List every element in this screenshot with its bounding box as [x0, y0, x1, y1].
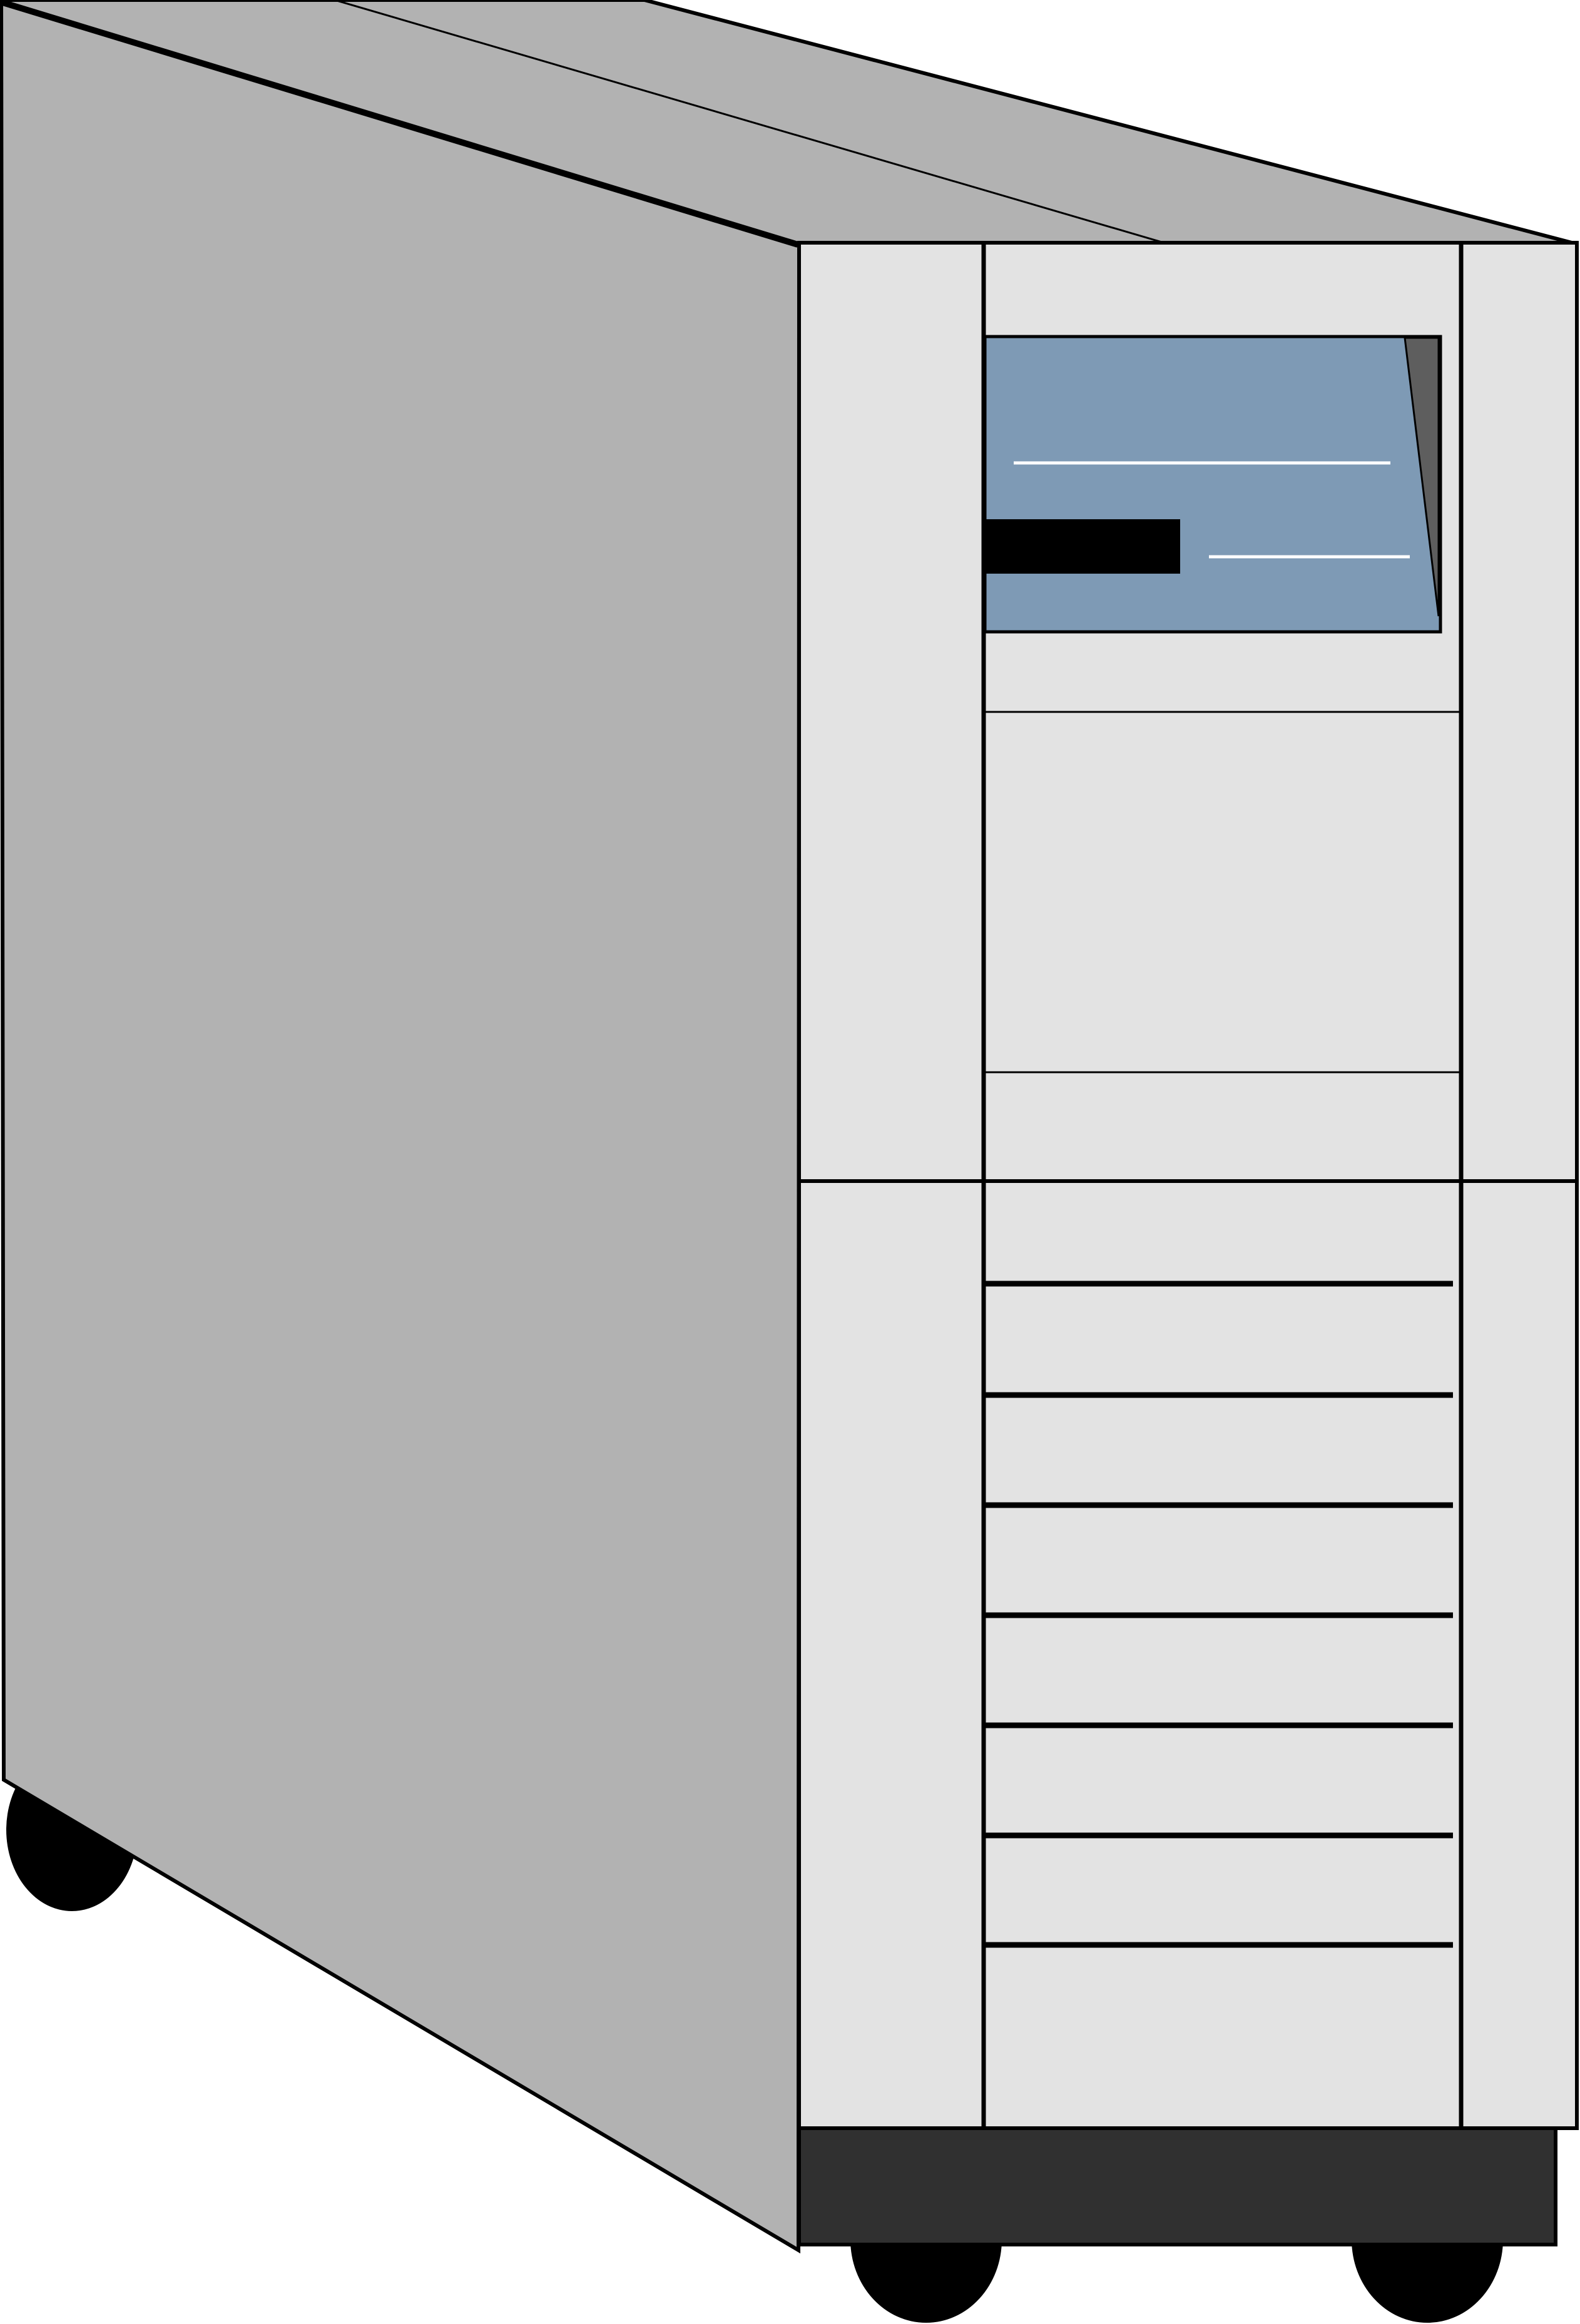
canvas-background [0, 0, 1580, 2324]
computer-tower-illustration [0, 0, 1580, 2324]
display-readout-bar [985, 519, 1180, 574]
base-plinth [799, 2128, 1556, 2245]
screen-panel [985, 337, 1440, 632]
